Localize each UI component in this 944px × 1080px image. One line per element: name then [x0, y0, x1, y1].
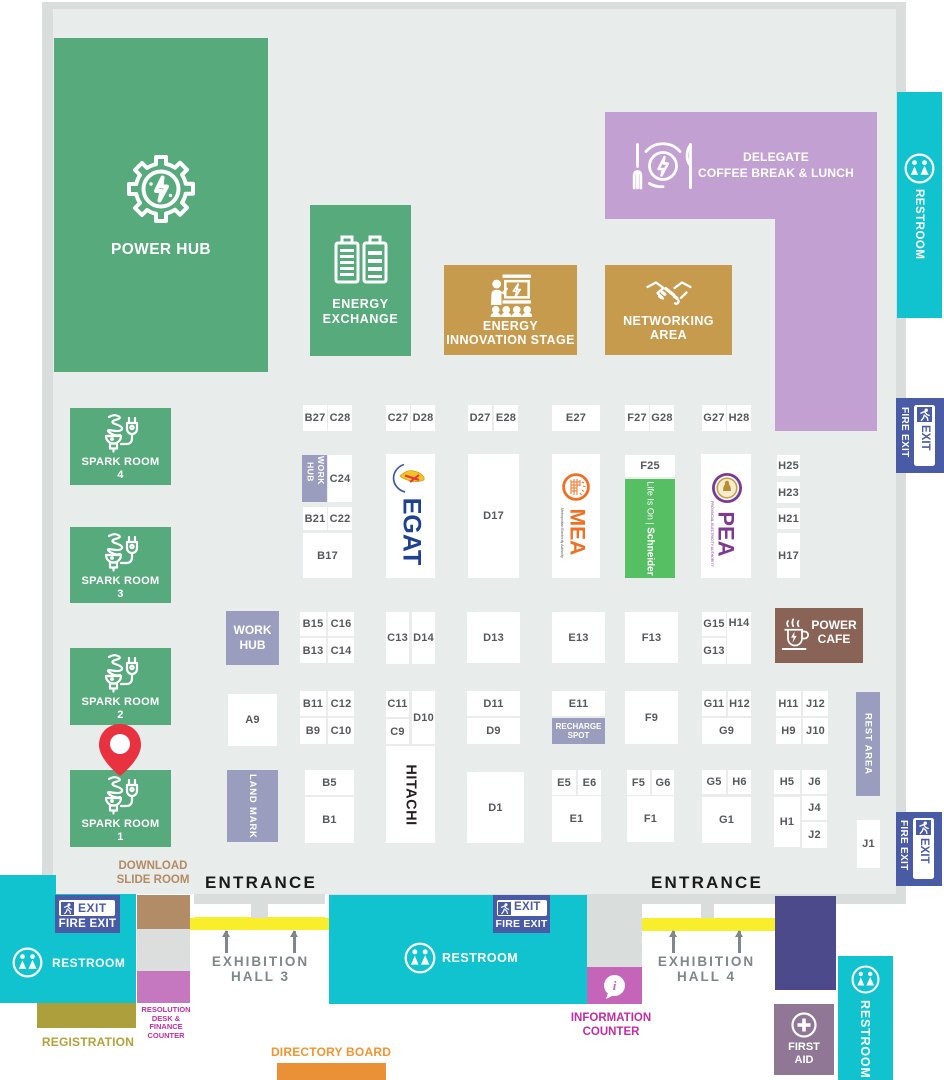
- svg-text:i: i: [613, 978, 617, 993]
